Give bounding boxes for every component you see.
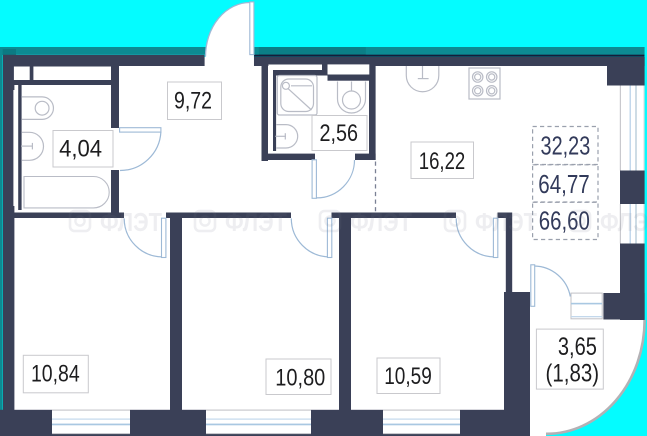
svg-text:2,56: 2,56 <box>320 120 359 147</box>
svg-text:4,04: 4,04 <box>59 136 102 163</box>
svg-text:16,22: 16,22 <box>419 148 466 175</box>
svg-text:(1,83): (1,83) <box>546 360 600 388</box>
svg-text:3,65: 3,65 <box>558 333 597 361</box>
svg-text:ФЛЭТ: ФЛЭТ <box>600 207 647 237</box>
svg-text:32,23: 32,23 <box>541 131 591 161</box>
svg-text:10,84: 10,84 <box>31 360 80 387</box>
svg-text:64,77: 64,77 <box>538 169 590 199</box>
svg-text:10,80: 10,80 <box>275 364 325 391</box>
svg-text:ФЛЭТ: ФЛЭТ <box>100 207 162 237</box>
svg-text:ФЛЭТ: ФЛЭТ <box>475 207 537 237</box>
svg-text:9,72: 9,72 <box>174 88 212 115</box>
svg-text:ФЛЭТ: ФЛЭТ <box>350 207 412 237</box>
svg-text:10,59: 10,59 <box>384 363 432 390</box>
svg-text:ФЛЭТ: ФЛЭТ <box>225 207 287 237</box>
